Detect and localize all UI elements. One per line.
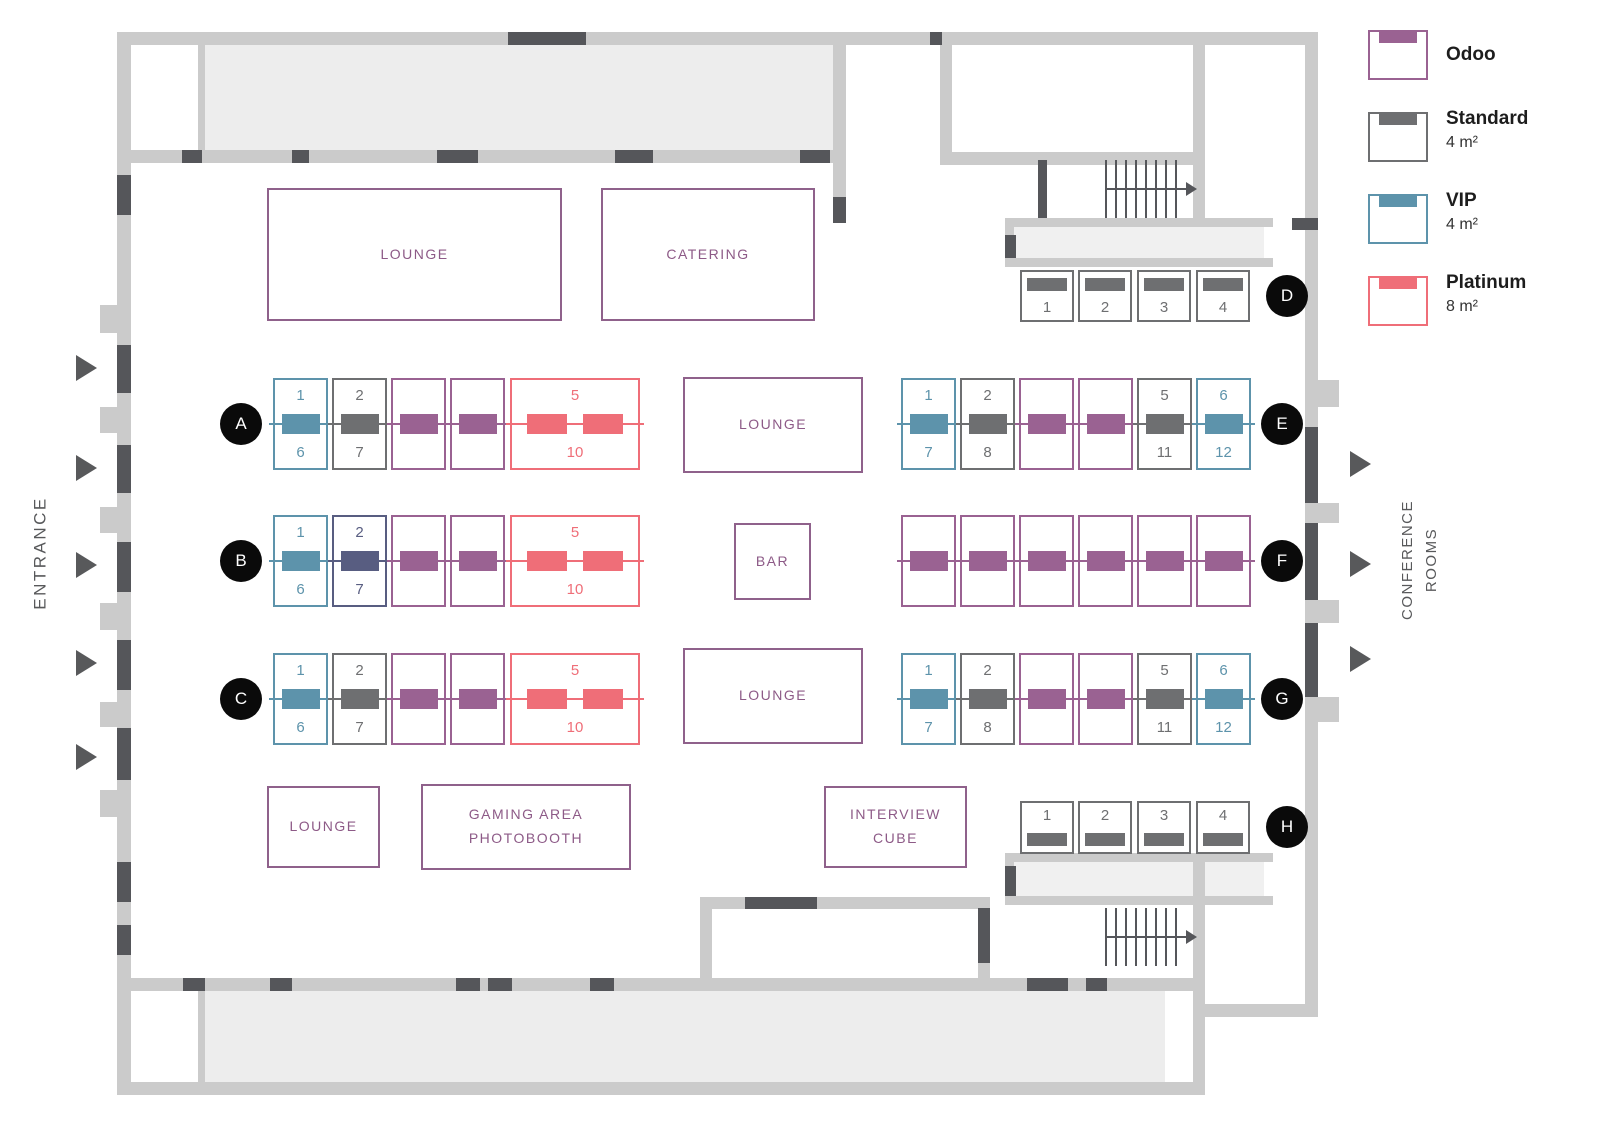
booth-number-top: 1 [903,662,954,679]
booth-table [527,551,567,571]
booth-number-bottom: 8 [962,444,1013,461]
booth-F-odoo[interactable] [960,515,1015,607]
booth-B-odoo[interactable] [391,515,446,607]
legend-standard-booth-icon [1368,112,1428,162]
booth-table [341,414,379,434]
booth-number-top: 2 [962,387,1013,404]
booth-table [1205,551,1243,571]
row-badge-F: F [1261,540,1303,582]
booth-F-odoo[interactable] [1137,515,1192,607]
booth-A-1[interactable]: 16 [273,378,328,470]
pillar-tab [100,305,117,333]
room-lounge: LOUNGE [267,188,562,321]
booth-number-bottom: 10 [512,444,638,461]
booth-number-top: 2 [334,662,385,679]
booth-number-top: 5 [1139,387,1190,404]
booth-number: 1 [1022,807,1072,824]
wall-segment [1005,896,1273,905]
door-segment [1305,523,1318,600]
legend-text: Standard4 m² [1446,108,1528,152]
legend-platinum-table [1379,276,1417,289]
booth-D-2[interactable]: 2 [1078,270,1132,322]
booth-table [1144,833,1184,846]
booth-G-2[interactable]: 28 [960,653,1015,745]
row-badge-A: A [220,403,262,445]
legend-text: VIP4 m² [1446,190,1478,234]
booth-number-top: 1 [275,524,326,541]
booth-table [400,551,438,571]
wall-segment [700,897,990,909]
booth-number-bottom: 11 [1139,444,1190,461]
booth-table [1028,689,1066,709]
entrance-label: ENTRANCE [26,496,53,610]
booth-table [969,551,1007,571]
booth-number-top: 1 [903,387,954,404]
legend-item-standard: Standard4 m² [1368,112,1528,162]
booth-table [1203,833,1243,846]
door-segment [930,32,942,45]
booth-E-5[interactable]: 511 [1137,378,1192,470]
room-catering: CATERING [601,188,815,321]
booth-B-2[interactable]: 27 [332,515,387,607]
booth-number-bottom: 8 [962,719,1013,736]
legend-vip-booth-icon [1368,194,1428,244]
booth-A-2[interactable]: 27 [332,378,387,470]
booth-H-1[interactable]: 1 [1020,801,1074,854]
booth-number-bottom: 11 [1139,719,1190,736]
booth-G-6[interactable]: 612 [1196,653,1251,745]
booth-table [1028,414,1066,434]
booth-A-5[interactable]: 510 [510,378,640,470]
booth-number-bottom: 7 [903,719,954,736]
booth-C-odoo[interactable] [450,653,505,745]
door-segment [270,978,292,991]
booth-F-odoo[interactable] [901,515,956,607]
booth-G-odoo[interactable] [1078,653,1133,745]
booth-number-top: 6 [1198,662,1249,679]
stairs-bottom-arrow [1105,936,1188,938]
booth-table [583,414,623,434]
door-segment [1005,235,1016,258]
booth-table [1085,833,1125,846]
booth-table [969,689,1007,709]
booth-table [459,689,497,709]
legend-odoo-table [1379,30,1417,43]
booth-number: 2 [1080,807,1130,824]
booth-table [1205,414,1243,434]
pillar-tab [100,507,117,533]
room-gaming-area: GAMING AREA PHOTOBOOTH [421,784,631,870]
booth-number-bottom: 7 [334,444,385,461]
door-segment [117,175,131,215]
booth-D-1[interactable]: 1 [1020,270,1074,322]
booth-table [969,414,1007,434]
booth-table [459,414,497,434]
wall-segment [1005,258,1273,267]
legend-item-vip: VIP4 m² [1368,194,1478,244]
row-badge-G: G [1261,678,1303,720]
booth-table [1027,833,1067,846]
booth-table [1087,414,1125,434]
door-segment [488,978,512,991]
booth-table [1205,689,1243,709]
legend-label: Platinum [1446,272,1526,294]
door-segment [508,32,586,45]
booth-table [1146,551,1184,571]
booth-number-bottom: 12 [1198,444,1249,461]
booth-number-top: 2 [334,387,385,404]
booth-E-odoo[interactable] [1078,378,1133,470]
booth-G-5[interactable]: 511 [1137,653,1192,745]
door-segment [117,640,131,690]
wall-segment [117,32,1318,45]
closed-area [205,45,833,150]
booth-G-odoo[interactable] [1019,653,1074,745]
entrance-arrow-icon [76,355,97,381]
booth-H-3[interactable]: 3 [1137,801,1191,854]
wall-segment [1193,1004,1318,1017]
row-badge-H: H [1266,806,1308,848]
pillar-tab [100,603,117,630]
booth-number: 4 [1198,299,1248,316]
wall-segment [198,991,205,1082]
booth-C-odoo[interactable] [391,653,446,745]
door-segment [117,345,131,393]
booth-number-top: 5 [512,387,638,404]
door-segment [833,197,846,223]
booth-number-bottom: 12 [1198,719,1249,736]
booth-number: 1 [1022,299,1072,316]
booth-number-bottom: 7 [903,444,954,461]
booth-number-bottom: 10 [512,719,638,736]
legend-text: Platinum8 m² [1446,272,1526,316]
door-segment [117,445,131,493]
booth-C-1[interactable]: 16 [273,653,328,745]
stairs-bottom-arrowhead-icon [1186,930,1197,944]
booth-table [459,551,497,571]
door-segment [1305,623,1318,697]
door-segment [1086,978,1107,991]
closed-area [205,991,1165,1082]
booth-table [527,689,567,709]
booth-table [1087,689,1125,709]
door-segment [117,728,131,780]
room-interview: INTERVIEW CUBE [824,786,967,868]
row-badge-C: C [220,678,262,720]
stairs-top-arrowhead-icon [1186,182,1197,196]
room-lounge: LOUNGE [267,786,380,868]
booth-D-3[interactable]: 3 [1137,270,1191,322]
wall-segment [940,45,952,152]
booth-F-odoo[interactable] [1078,515,1133,607]
booth-D-4[interactable]: 4 [1196,270,1250,322]
pillar-tab [1305,503,1339,523]
room-lounge: LOUNGE [683,648,863,744]
booth-G-1[interactable]: 17 [901,653,956,745]
booth-number-top: 2 [962,662,1013,679]
door-segment [978,908,990,963]
booth-number-top: 5 [512,524,638,541]
pillar-tab [100,407,117,433]
booth-number-bottom: 6 [275,581,326,598]
booth-table [400,689,438,709]
booth-table [1146,414,1184,434]
booth-table [583,689,623,709]
legend-item-platinum: Platinum8 m² [1368,276,1526,326]
room-lounge: LOUNGE [683,377,863,473]
booth-B-1[interactable]: 16 [273,515,328,607]
legend-label: Odoo [1446,44,1496,66]
legend-size: 4 m² [1446,134,1528,152]
wall-segment [117,1082,1205,1095]
booth-number-top: 1 [275,662,326,679]
legend-text: Odoo [1446,44,1496,66]
door-segment [745,897,817,909]
booth-number-top: 5 [512,662,638,679]
booth-E-odoo[interactable] [1019,378,1074,470]
booth-A-odoo[interactable] [391,378,446,470]
booth-table [341,551,379,571]
booth-F-odoo[interactable] [1019,515,1074,607]
legend-platinum-booth-icon [1368,276,1428,326]
conference-arrow-icon [1350,646,1371,672]
booth-E-2[interactable]: 28 [960,378,1015,470]
booth-B-odoo[interactable] [450,515,505,607]
booth-table [282,414,320,434]
legend-label: VIP [1446,190,1478,212]
door-segment [615,150,653,163]
booth-H-4[interactable]: 4 [1196,801,1250,854]
booth-F-odoo[interactable] [1196,515,1251,607]
wall-segment [117,150,846,163]
booth-table [1203,278,1243,291]
booth-table [1144,278,1184,291]
door-segment [590,978,614,991]
room-bar: BAR [734,523,811,600]
booth-table [583,551,623,571]
wall-segment [198,45,205,150]
door-segment [117,542,131,592]
door-segment [183,978,205,991]
booth-table [527,414,567,434]
counter-top [1014,227,1264,258]
door-segment [1005,866,1016,896]
conference-arrow-icon [1350,551,1371,577]
booth-B-5[interactable]: 510 [510,515,640,607]
door-segment [437,150,478,163]
booth-number-top: 5 [1139,662,1190,679]
door-segment [456,978,480,991]
booth-C-2[interactable]: 27 [332,653,387,745]
booth-number-bottom: 10 [512,581,638,598]
door-segment [1038,160,1047,218]
booth-number-top: 6 [1198,387,1249,404]
booth-table [282,551,320,571]
row-badge-D: D [1266,275,1308,317]
entrance-arrow-icon [76,455,97,481]
conference-arrow-icon [1350,451,1371,477]
door-segment [117,862,131,902]
legend-size: 4 m² [1446,216,1478,234]
booth-number: 2 [1080,299,1130,316]
event-floor-plan: ENTRANCE CONFERENCE ROOMS LOUNGECATERING… [0,0,1600,1124]
booth-number-bottom: 7 [334,581,385,598]
legend-item-odoo: Odoo [1368,30,1496,80]
pillar-tab [100,790,117,817]
wall-segment [1005,218,1273,227]
wall-segment [700,897,712,978]
legend-label: Standard [1446,108,1528,130]
counter-bottom [1014,862,1264,896]
wall-segment [1193,853,1205,1004]
booth-number: 3 [1139,807,1189,824]
booth-table [1027,278,1067,291]
legend-standard-table [1379,112,1417,125]
pillar-tab [1305,697,1339,722]
door-segment [292,150,309,163]
booth-table [1085,278,1125,291]
booth-E-6[interactable]: 612 [1196,378,1251,470]
entrance-arrow-icon [76,552,97,578]
booth-number-bottom: 7 [334,719,385,736]
booth-table [910,414,948,434]
booth-E-1[interactable]: 17 [901,378,956,470]
booth-number: 4 [1198,807,1248,824]
booth-H-2[interactable]: 2 [1078,801,1132,854]
booth-table [910,689,948,709]
booth-table [910,551,948,571]
stairs-top-arrow [1105,188,1188,190]
booth-number-top: 2 [334,524,385,541]
door-segment [1292,218,1318,230]
pillar-tab [100,702,117,727]
booth-table [1087,551,1125,571]
booth-table [400,414,438,434]
booth-number-bottom: 6 [275,444,326,461]
row-badge-B: B [220,540,262,582]
booth-table [282,689,320,709]
row-badge-E: E [1261,403,1303,445]
wall-segment [1005,853,1273,862]
entrance-arrow-icon [76,744,97,770]
conference-rooms-label: CONFERENCE ROOMS [1396,500,1444,620]
pillar-tab [1305,380,1339,407]
booth-table [1146,689,1184,709]
booth-number-top: 1 [275,387,326,404]
booth-table [341,689,379,709]
door-segment [117,925,131,955]
legend-odoo-booth-icon [1368,30,1428,80]
legend-size: 8 m² [1446,298,1526,316]
booth-table [1028,551,1066,571]
door-segment [1027,978,1068,991]
booth-A-odoo[interactable] [450,378,505,470]
booth-number: 3 [1139,299,1189,316]
booth-number-bottom: 6 [275,719,326,736]
legend-vip-table [1379,194,1417,207]
door-segment [800,150,830,163]
door-segment [1305,427,1318,503]
pillar-tab [1305,600,1339,623]
booth-C-5[interactable]: 510 [510,653,640,745]
door-segment [182,150,202,163]
entrance-arrow-icon [76,650,97,676]
wall-segment [1193,1004,1205,1095]
wall-segment [1193,45,1205,231]
